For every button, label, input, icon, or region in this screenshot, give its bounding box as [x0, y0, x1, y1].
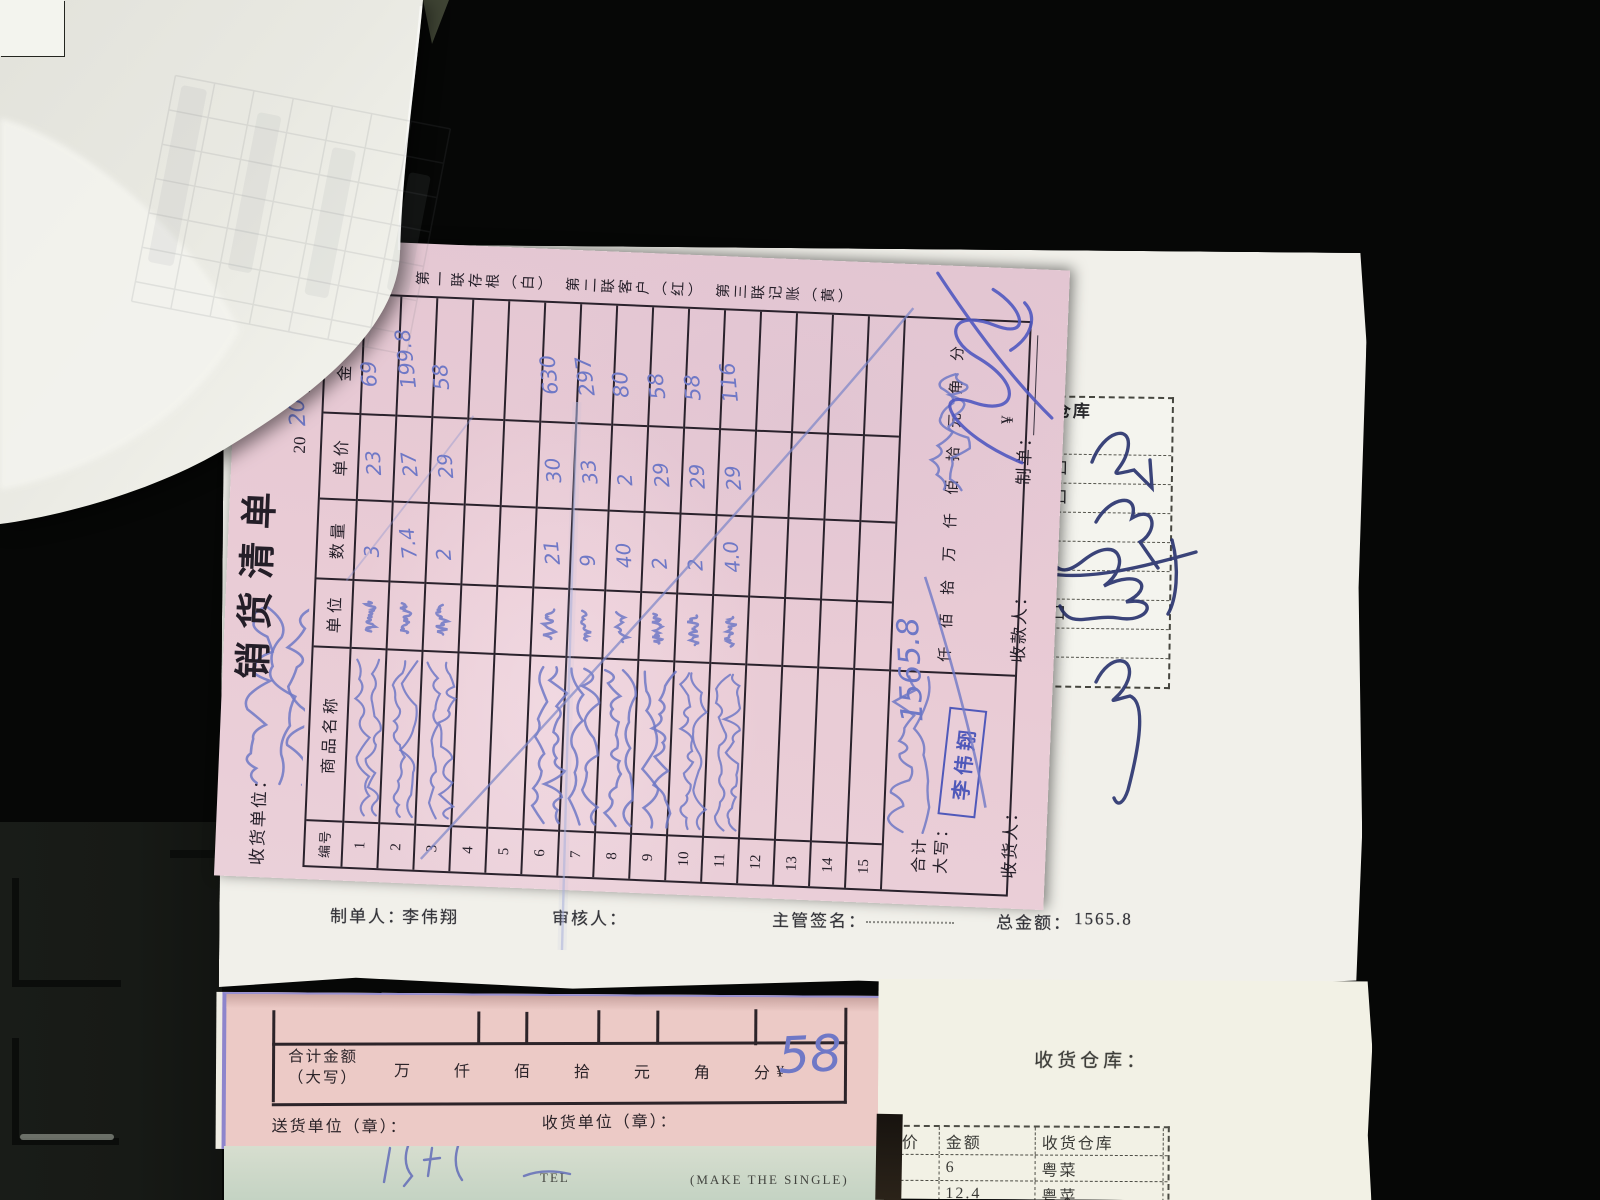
right-table-cell: 12.4: [939, 1181, 1035, 1200]
right-table-cell: [895, 1181, 939, 1200]
signature-line: [866, 907, 954, 924]
reviewer-label: 审核人：: [552, 904, 628, 930]
scale-char: 仟: [454, 1057, 470, 1081]
right-table-cell: [896, 1155, 940, 1180]
right-paper: 收货仓库： 价金额收货仓库 6粤菜12.4粤菜: [877, 979, 1372, 1200]
make-single-note: (MAKE THE SINGLE): [690, 1172, 849, 1188]
paper-gap-shadow: [875, 1114, 902, 1200]
scale-char: 拾: [574, 1058, 590, 1082]
fragment-shadow: [226, 994, 888, 1012]
scale-char: 元: [634, 1058, 650, 1082]
right-table-row: 12.4粤菜: [895, 1180, 1167, 1200]
desk-surface: [0, 822, 222, 1200]
bottom-form-fragment: 合计金额 （大写） 万仟佰拾元角分 ¥ 58 送货单位（章）： 收货单位（章）：: [222, 992, 889, 1153]
right-paper-table: 价金额收货仓库 6粤菜12.4粤菜: [893, 1125, 1169, 1200]
sender-label: 送货单位（章）：: [272, 1112, 408, 1137]
right-table-header: 价金额收货仓库: [896, 1127, 1168, 1155]
right-table-row: 6粤菜: [896, 1154, 1168, 1181]
receiver-stamp-label: 收货单位（章）：: [542, 1107, 678, 1133]
right-table-col-header: 金额: [940, 1127, 1036, 1155]
curled-paper: [0, 0, 700, 560]
desk-groove: [12, 878, 121, 987]
preparer-label: 制单人：: [330, 902, 406, 928]
right-table-cell: 6: [940, 1155, 1036, 1181]
supervisor-label: 主管签名：: [772, 906, 867, 932]
bottom-scale-chars: 万仟佰拾元角分: [394, 1057, 770, 1083]
green-strip-page: TEL (MAKE THE SINGLE): [224, 1146, 884, 1200]
right-table-col-header: 收货仓库: [1036, 1128, 1164, 1156]
right-table-cell: 粤菜: [1035, 1182, 1163, 1200]
bottom-amount-handwritten: 58: [777, 1024, 843, 1085]
total-label: 总金额：: [996, 908, 1072, 934]
scale-char: 角: [694, 1059, 710, 1083]
scale-char: 分: [754, 1059, 770, 1083]
bottom-total-label: 合计金额 （大写）: [288, 1046, 358, 1088]
scale-char: 佰: [514, 1058, 530, 1082]
cut-handwriting: [374, 1146, 594, 1188]
right-table-cell: 粤菜: [1036, 1156, 1164, 1182]
total-value: 1565.8: [1074, 909, 1133, 930]
scale-char: 万: [394, 1057, 410, 1081]
stray-handwriting: [868, 673, 945, 836]
white-corner-card: [0, 0, 64, 56]
preparer-name: 李伟翔: [402, 903, 459, 929]
desk-glimpse-wedge: [423, 0, 449, 44]
desk-groove: [12, 1038, 119, 1145]
warehouse-label: 收货仓库：: [1034, 1046, 1149, 1074]
desk-groove-highlight: [20, 1134, 114, 1140]
photo-of-receipts: { "main_form": { "customer_label": "收货单位…: [0, 0, 1600, 1200]
